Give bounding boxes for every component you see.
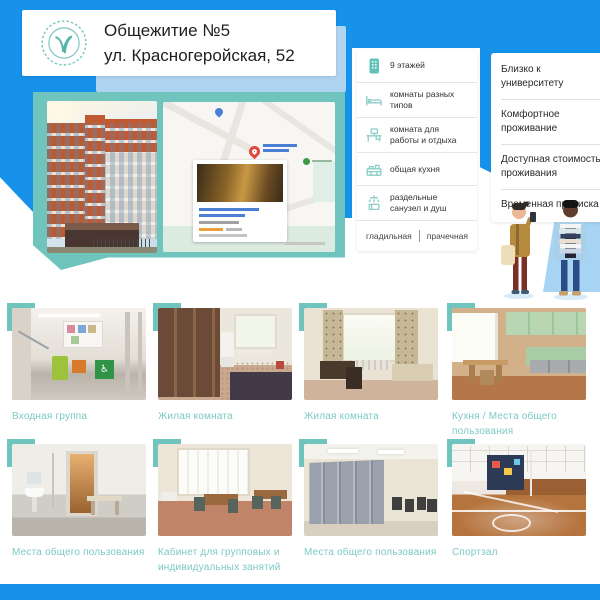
building-photo bbox=[47, 101, 157, 253]
gallery-item: Жилая комната bbox=[304, 308, 438, 424]
poster bbox=[67, 325, 75, 333]
gallery-item: Спортзал bbox=[452, 444, 586, 560]
popup-text-smudge bbox=[199, 234, 247, 237]
ceiling bbox=[304, 444, 438, 459]
pole bbox=[530, 450, 532, 496]
window-blinds bbox=[177, 448, 251, 496]
feature-label: раздельные санузел и душ bbox=[390, 192, 470, 214]
laundry-right-label: прачечная bbox=[427, 231, 468, 241]
reception-desk bbox=[72, 360, 85, 373]
lockers bbox=[309, 460, 384, 524]
popup-title-smudge bbox=[199, 214, 245, 217]
building-icon bbox=[364, 56, 384, 76]
fridge bbox=[221, 332, 234, 367]
poster bbox=[78, 325, 86, 333]
chair bbox=[405, 499, 414, 512]
feature-row-rooms: комнаты разных типов bbox=[357, 83, 477, 118]
header-card: Общежитие №5 ул. Красногеройская, 52 bbox=[22, 10, 336, 76]
gallery-caption: Жилая комната bbox=[304, 409, 438, 424]
table-leg bbox=[496, 365, 501, 382]
chair bbox=[417, 497, 426, 510]
table-leg bbox=[469, 365, 474, 382]
chair bbox=[346, 367, 362, 389]
wardrobes bbox=[158, 308, 220, 397]
chair bbox=[228, 499, 239, 513]
features-card: 9 этажей комнаты разных типов комната дл… bbox=[357, 50, 477, 251]
feature-label: общая кухня bbox=[390, 164, 440, 175]
gallery-caption: Кабинет для групповых и индивидуальных з… bbox=[158, 545, 292, 575]
banner-detail bbox=[492, 461, 500, 468]
mirror bbox=[27, 472, 42, 485]
chair bbox=[427, 499, 436, 512]
window bbox=[234, 314, 277, 349]
gallery-caption: Спортзал bbox=[452, 545, 586, 560]
gallery-item: Места общего пользования bbox=[12, 444, 146, 560]
students-illustration bbox=[492, 196, 600, 300]
map-popup bbox=[193, 160, 287, 242]
entrance-canopy bbox=[65, 223, 139, 230]
radiator bbox=[161, 492, 177, 501]
gallery-caption: Места общего пользования bbox=[12, 545, 146, 560]
map-green-patch bbox=[313, 162, 335, 202]
gallery-caption: Жилая комната bbox=[158, 409, 292, 424]
bed-icon bbox=[364, 90, 384, 110]
chair bbox=[392, 497, 401, 510]
table-leg bbox=[115, 501, 119, 515]
laundry-left-label: гладильная bbox=[366, 231, 412, 241]
popup-title-smudge bbox=[199, 208, 259, 211]
ground bbox=[47, 247, 157, 253]
gallery-photo-gym bbox=[452, 444, 586, 536]
windows-texture bbox=[47, 123, 157, 239]
pin-label-smudge bbox=[263, 144, 297, 147]
gallery-photo-room1 bbox=[158, 308, 292, 400]
laundry-row: гладильная прачечная bbox=[357, 221, 477, 251]
pin-label-smudge bbox=[263, 149, 289, 152]
chair bbox=[194, 497, 205, 511]
floor-sheen bbox=[452, 495, 586, 536]
table-leg bbox=[91, 501, 95, 515]
poster bbox=[88, 325, 96, 333]
gallery-item: Кабинет для групповых и индивидуальных з… bbox=[158, 444, 292, 575]
accessibility-sign: ♿ bbox=[95, 360, 114, 379]
gallery-photo-washroom bbox=[12, 444, 146, 536]
poi-label-smudge bbox=[312, 160, 332, 162]
gallery-photo-lockers bbox=[304, 444, 438, 536]
stool bbox=[480, 370, 493, 386]
feature-row-floors: 9 этажей bbox=[357, 50, 477, 83]
workroom-icon bbox=[364, 125, 384, 145]
footer-bar bbox=[0, 584, 600, 600]
decor bbox=[276, 361, 284, 368]
dormitory-info-slide: Общежитие №5 ул. Красногеройская, 52 bbox=[0, 0, 600, 600]
popup-photo bbox=[197, 164, 283, 202]
ceiling-light bbox=[39, 314, 101, 317]
feature-label: комнаты разных типов bbox=[390, 89, 470, 111]
gallery-caption: Входная группа bbox=[12, 409, 146, 424]
title-line-2: ул. Красногеройская, 52 bbox=[104, 43, 295, 69]
sinks bbox=[530, 360, 586, 373]
sink-pedestal bbox=[32, 497, 37, 512]
bed bbox=[230, 372, 292, 400]
gallery-photo-kitchen bbox=[452, 308, 586, 400]
chair bbox=[271, 496, 282, 509]
sofa bbox=[392, 364, 432, 381]
poster bbox=[71, 336, 79, 344]
popup-text-smudge bbox=[226, 228, 242, 231]
door-frame bbox=[138, 312, 142, 395]
gallery-caption: Кухня / Места общего пользования bbox=[452, 409, 586, 439]
curtain-right bbox=[395, 310, 418, 367]
window bbox=[452, 313, 498, 363]
laundry-divider bbox=[419, 230, 420, 242]
gallery-photo-room2 bbox=[304, 308, 438, 400]
photo-panel bbox=[33, 92, 345, 270]
feature-label: комната для работы и отдыха bbox=[390, 124, 470, 146]
secondary-pin-icon bbox=[213, 106, 224, 117]
sink bbox=[25, 488, 44, 497]
page-title: Общежитие №5 ул. Красногеройская, 52 bbox=[104, 18, 295, 69]
banner-detail bbox=[514, 459, 521, 465]
title-line-1: Общежитие №5 bbox=[104, 18, 295, 44]
gallery-caption: Места общего пользования bbox=[304, 545, 438, 560]
popup-rating-smudge bbox=[199, 228, 223, 231]
ceiling-light bbox=[378, 450, 405, 454]
wall bbox=[12, 308, 31, 400]
gallery-item: Жилая комната bbox=[158, 308, 292, 424]
location-map bbox=[163, 102, 335, 252]
gallery-item: Кухня / Места общего пользования bbox=[452, 308, 586, 439]
floor bbox=[304, 380, 438, 400]
pipe bbox=[52, 453, 54, 508]
benefit-item: Доступная стоимость проживания bbox=[501, 145, 600, 190]
door-frame bbox=[125, 312, 130, 395]
gallery-item: Места общего пользования bbox=[304, 444, 438, 560]
feature-row-bathroom: раздельные санузел и душ bbox=[357, 186, 477, 221]
ceiling-light bbox=[328, 449, 357, 453]
gallery-item: ♿ Входная группа bbox=[12, 308, 146, 424]
gallery-photo-classroom bbox=[158, 444, 292, 536]
poi-marker-icon bbox=[303, 158, 310, 165]
turnstile bbox=[52, 356, 68, 380]
kitchen-icon bbox=[364, 159, 384, 179]
table bbox=[238, 350, 270, 355]
feature-row-workroom: комната для работы и отдыха bbox=[357, 118, 477, 153]
banner-detail bbox=[504, 468, 512, 475]
upper-cabinets bbox=[506, 312, 586, 335]
curtain-left bbox=[323, 310, 343, 367]
feature-row-kitchen: общая кухня bbox=[357, 153, 477, 186]
feature-label: 9 этажей bbox=[390, 60, 425, 71]
chair bbox=[252, 496, 263, 509]
map-attribution-smudge bbox=[285, 242, 325, 245]
gallery-photo-entrance: ♿ bbox=[12, 308, 146, 400]
popup-text-smudge bbox=[199, 221, 239, 224]
university-logo-icon bbox=[40, 19, 88, 67]
benefit-item: Близко к университету bbox=[501, 55, 600, 100]
benefit-item: Комфортное проживание bbox=[501, 100, 600, 145]
shower-icon bbox=[364, 193, 384, 213]
